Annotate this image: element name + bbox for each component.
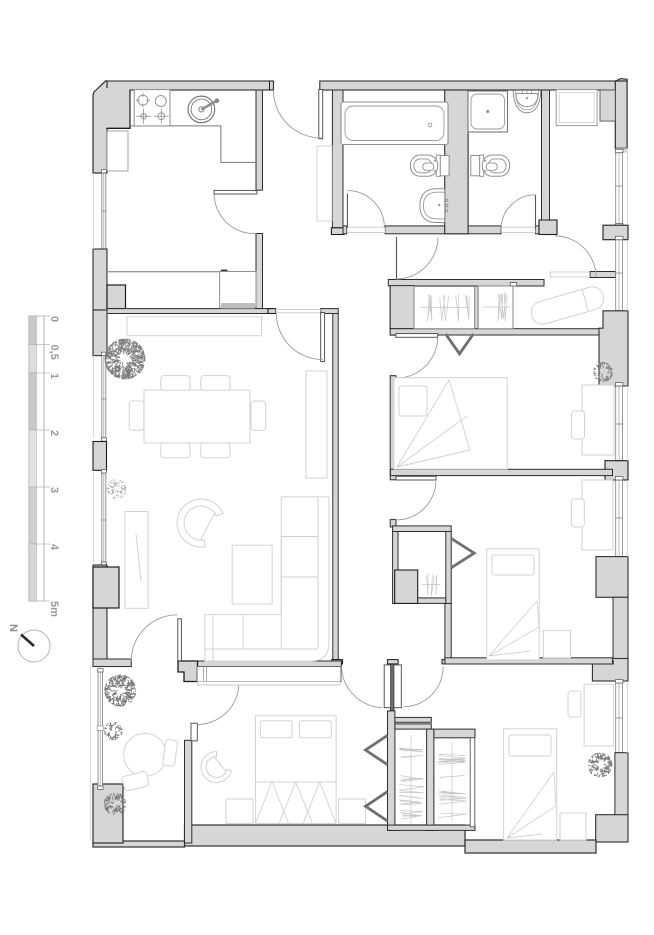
- svg-text:2: 2: [48, 430, 60, 436]
- svg-text:1: 1: [48, 373, 60, 379]
- svg-text:0: 0: [48, 316, 60, 322]
- svg-text:0,5: 0,5: [48, 345, 60, 360]
- svg-text:5m: 5m: [48, 601, 60, 617]
- svg-text:4: 4: [48, 544, 60, 551]
- svg-text:3: 3: [48, 487, 60, 493]
- svg-text:N: N: [7, 624, 19, 632]
